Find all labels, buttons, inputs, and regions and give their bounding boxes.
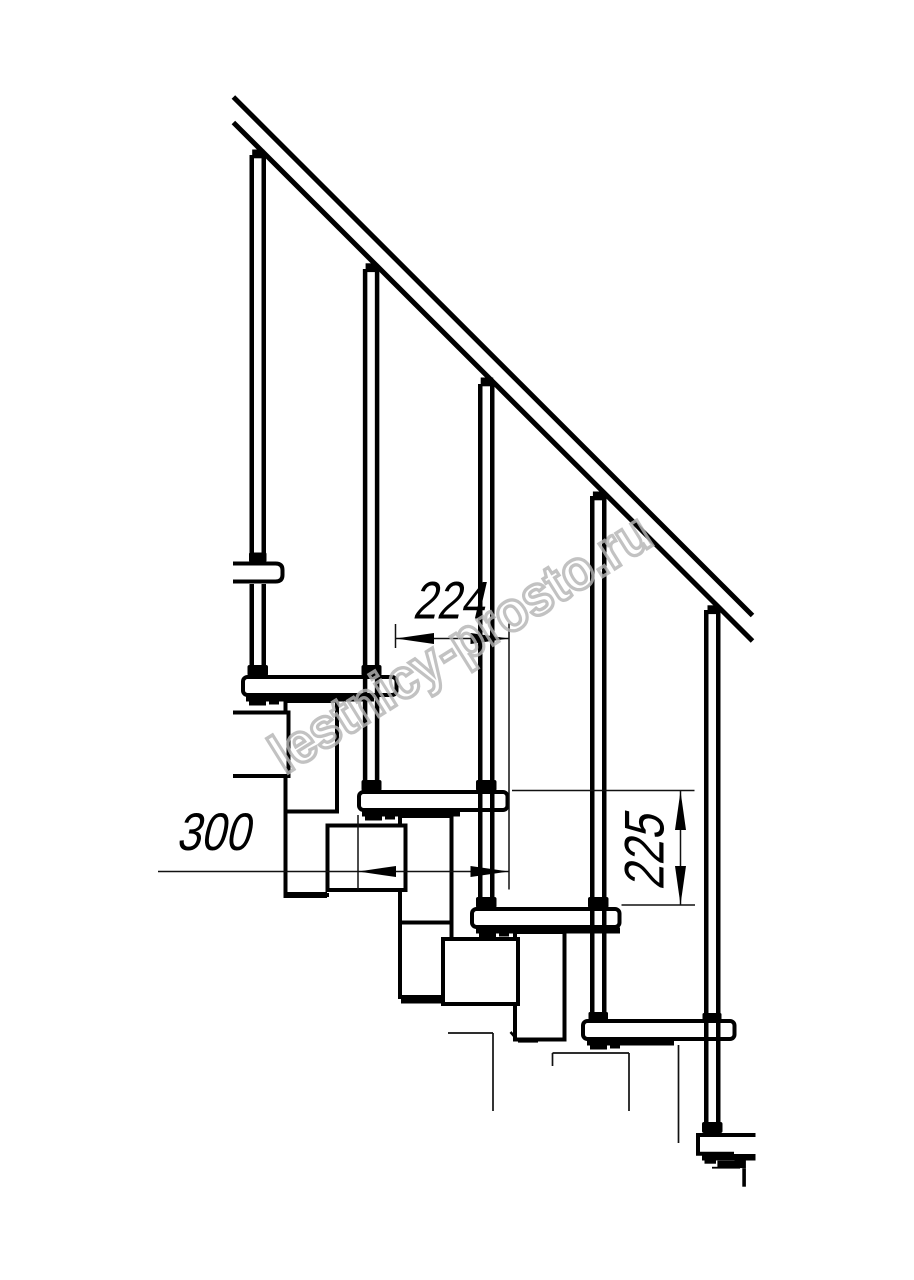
svg-text:300: 300 bbox=[173, 803, 260, 862]
svg-text:225: 225 bbox=[612, 804, 675, 893]
